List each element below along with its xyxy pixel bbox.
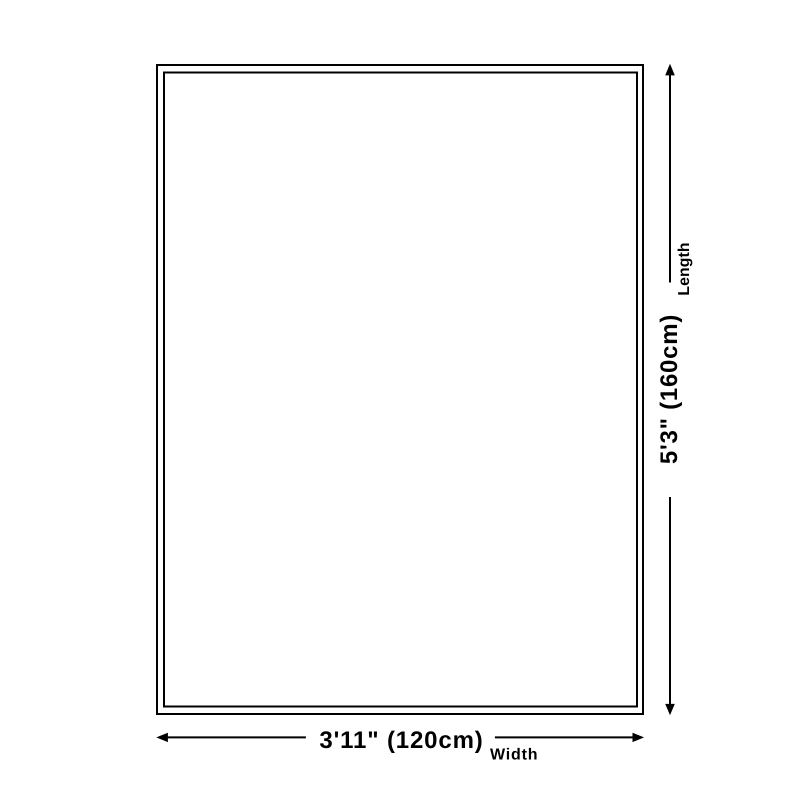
svg-text:Length: Length: [676, 242, 693, 295]
svg-text:Width: Width: [490, 746, 538, 763]
svg-text:3'11" (120cm): 3'11" (120cm): [319, 727, 483, 754]
svg-text:5'3" (160cm): 5'3" (160cm): [656, 314, 683, 464]
